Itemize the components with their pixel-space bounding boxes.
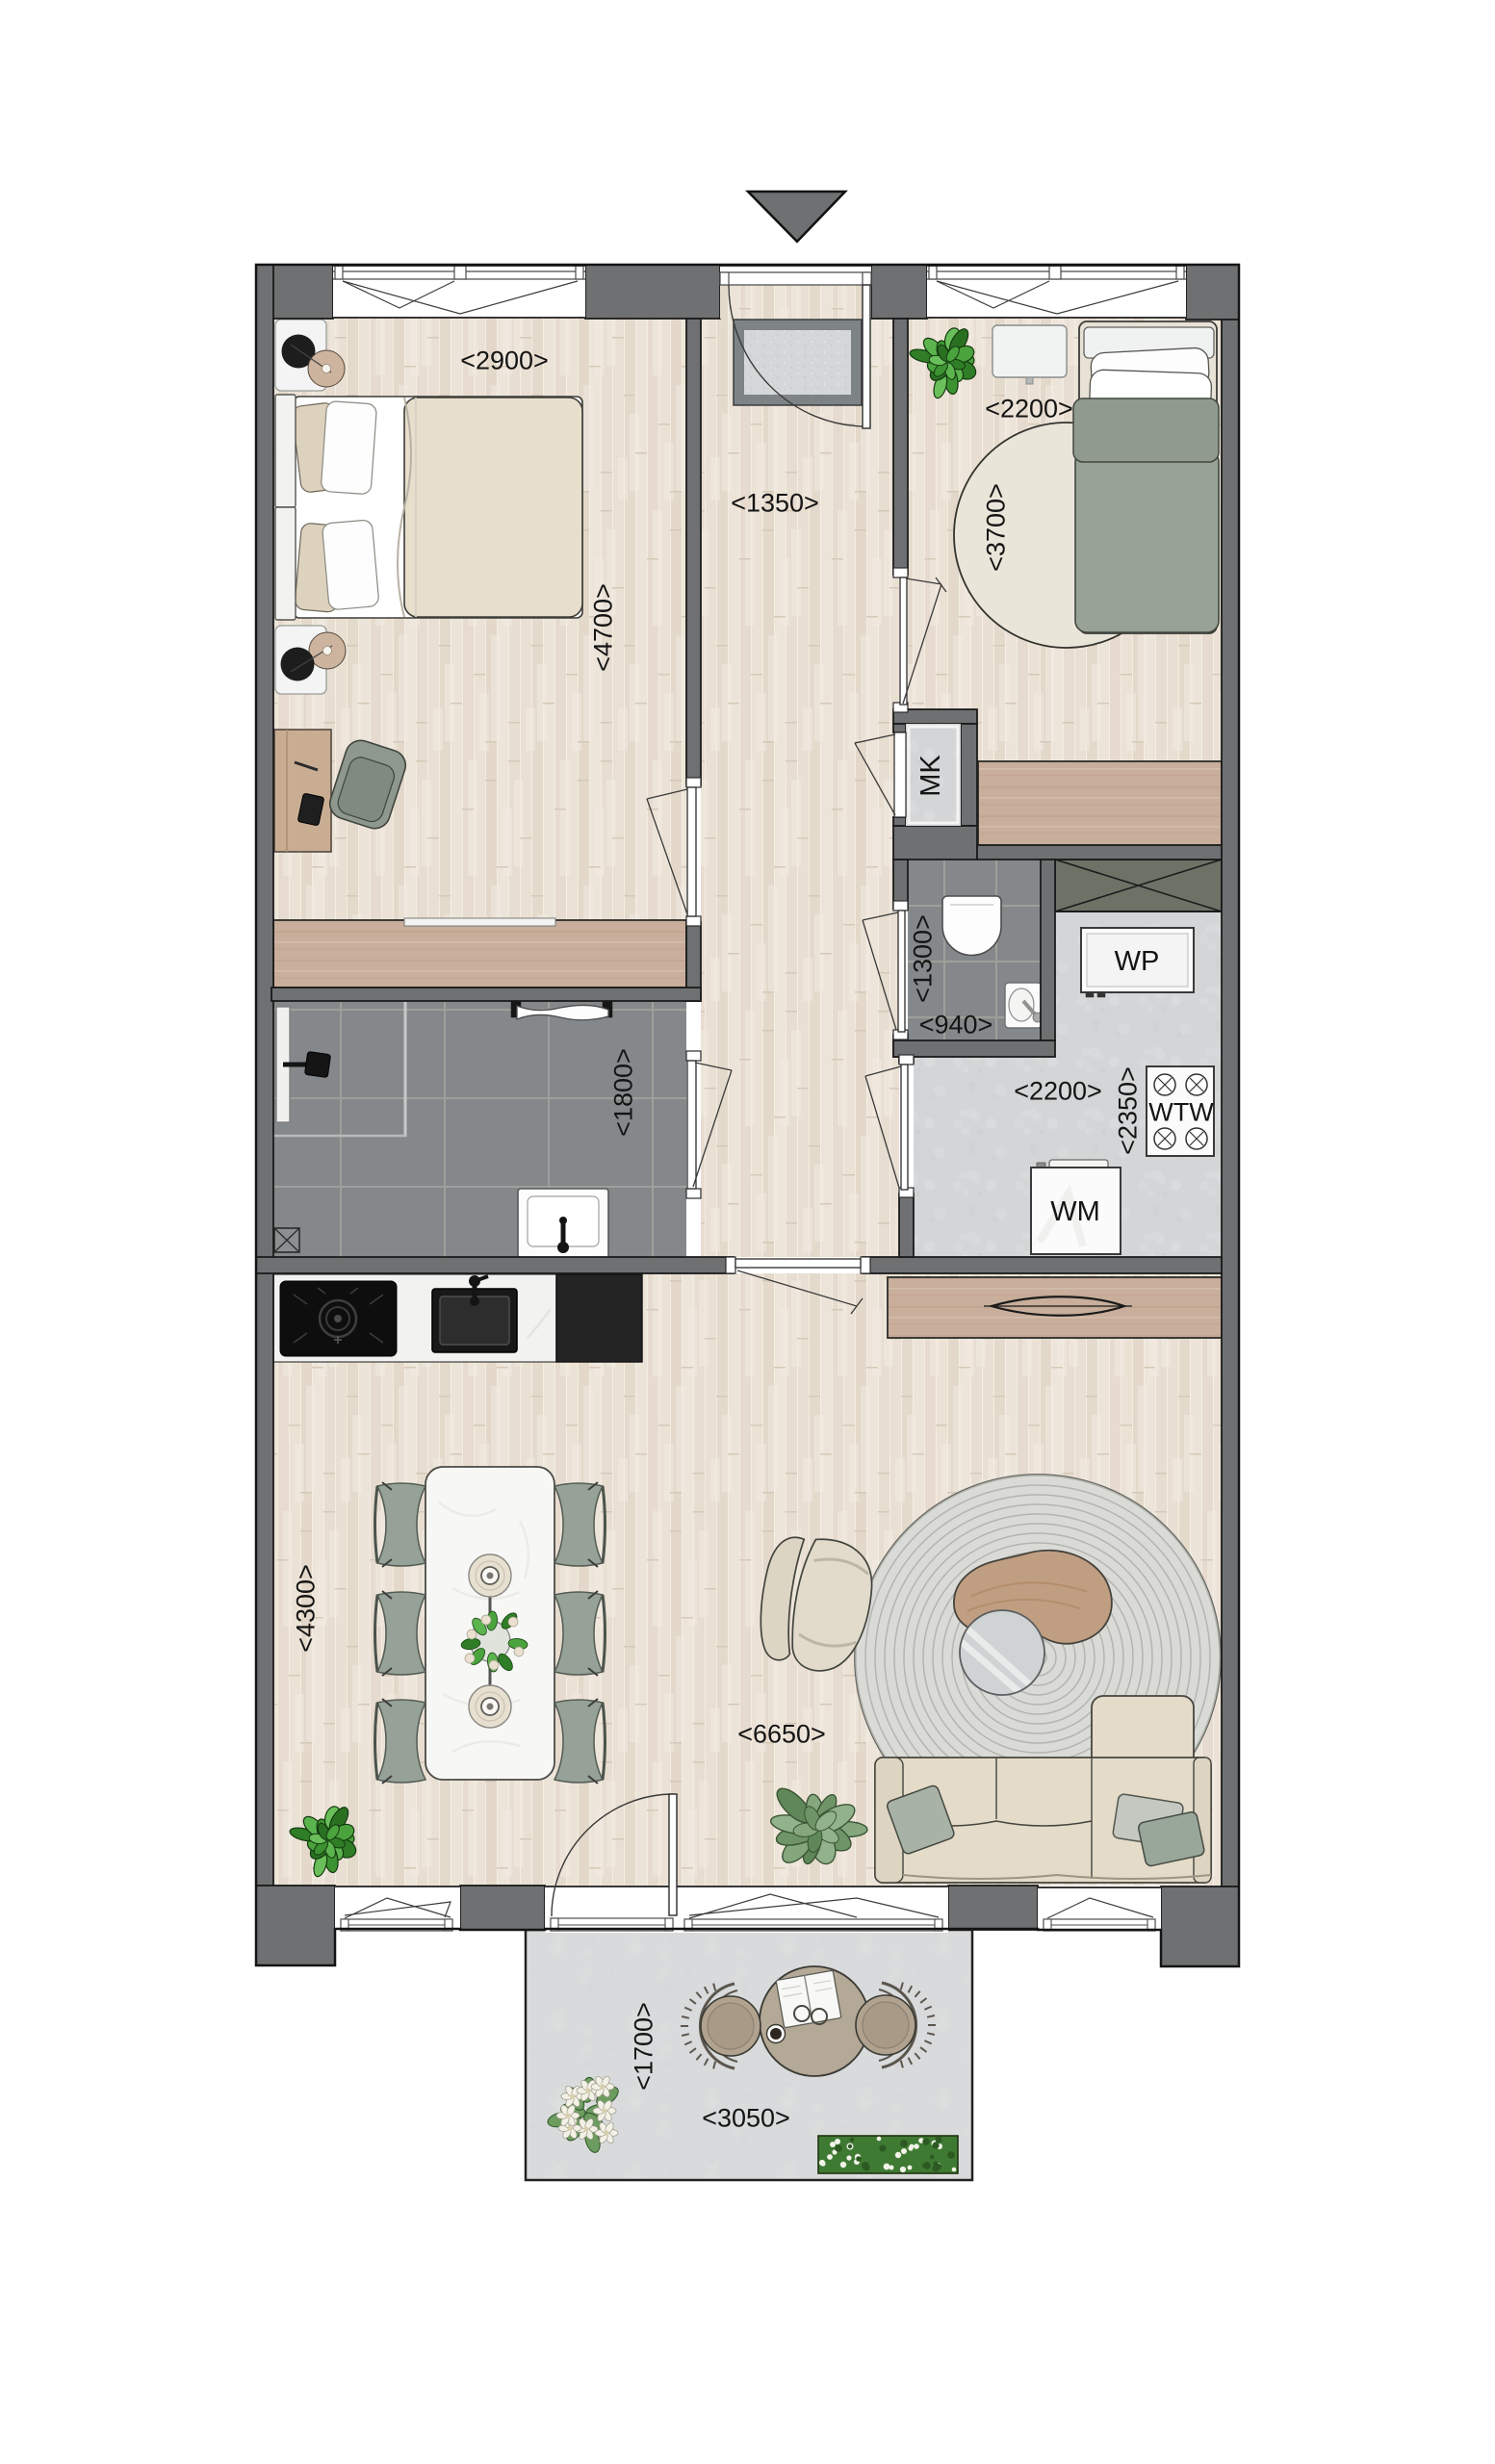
- svg-text:<940>: <940>: [919, 1010, 993, 1039]
- svg-text:<1800>: <1800>: [608, 1048, 637, 1137]
- svg-text:WM: WM: [1050, 1196, 1100, 1227]
- svg-text:WP: WP: [1115, 946, 1160, 977]
- svg-text:<1300>: <1300>: [908, 914, 937, 1003]
- svg-text:<2900>: <2900>: [460, 346, 549, 374]
- svg-text:<3700>: <3700>: [981, 483, 1010, 572]
- svg-text:<6650>: <6650>: [737, 1719, 826, 1748]
- svg-text:WTW: WTW: [1148, 1097, 1214, 1126]
- svg-text:<4700>: <4700>: [588, 583, 617, 672]
- svg-text:<4300>: <4300>: [291, 1564, 320, 1653]
- svg-text:<2200>: <2200>: [1014, 1076, 1102, 1105]
- svg-text:<3050>: <3050>: [702, 2103, 790, 2132]
- svg-text:<1350>: <1350>: [731, 488, 819, 517]
- svg-text:<2350>: <2350>: [1113, 1066, 1142, 1155]
- svg-text:<2200>: <2200>: [985, 394, 1073, 423]
- svg-text:MK: MK: [915, 755, 946, 797]
- svg-text:<1700>: <1700>: [629, 2002, 657, 2091]
